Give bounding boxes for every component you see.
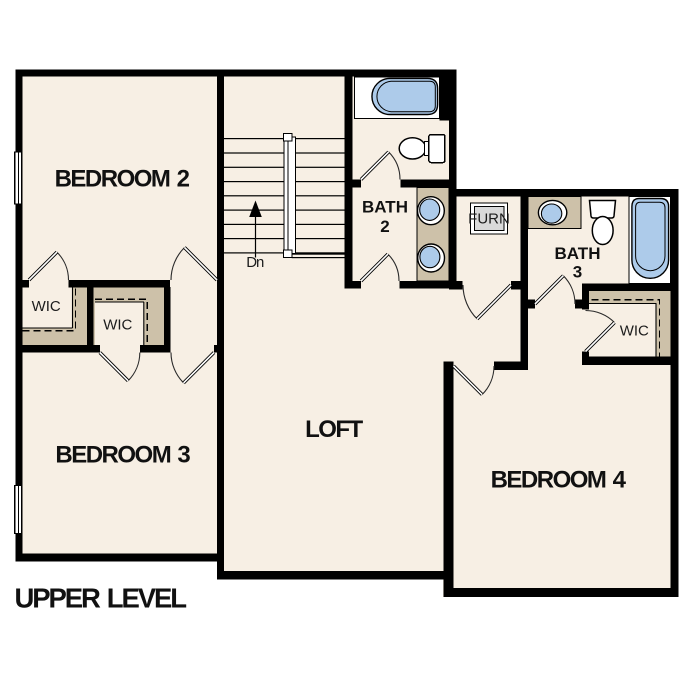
svg-text:BEDROOM 4: BEDROOM 4	[491, 467, 627, 494]
svg-text:BATH: BATH	[555, 244, 601, 263]
svg-text:BEDROOM 3: BEDROOM 3	[55, 442, 190, 469]
svg-text:LOFT: LOFT	[305, 416, 363, 443]
svg-text:WIC: WIC	[32, 298, 61, 315]
svg-text:3: 3	[573, 263, 582, 282]
svg-text:FURN: FURN	[468, 211, 510, 228]
svg-text:BEDROOM 2: BEDROOM 2	[55, 166, 190, 193]
svg-text:WIC: WIC	[103, 317, 132, 334]
svg-text:BATH: BATH	[362, 197, 408, 216]
svg-text:2: 2	[380, 217, 389, 236]
svg-text:WIC: WIC	[620, 323, 649, 340]
svg-text:UPPER LEVEL: UPPER LEVEL	[15, 583, 187, 614]
svg-text:Dn: Dn	[246, 254, 264, 271]
